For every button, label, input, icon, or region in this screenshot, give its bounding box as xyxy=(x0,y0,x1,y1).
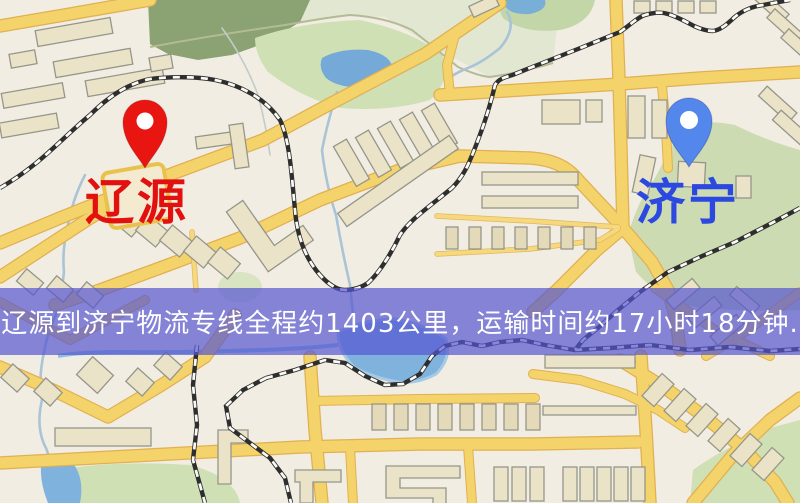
route-info-banner: 辽源到济宁物流专线全程约1403公里，运输时间约17小时18分钟. xyxy=(0,288,800,355)
landmark-building xyxy=(102,163,173,229)
map-canvas[interactable] xyxy=(0,0,800,503)
map-screenshot: 辽源到济宁物流专线全程约1403公里，运输时间约17小时18分钟. 辽源 济宁 xyxy=(0,0,800,503)
route-info-text: 辽源到济宁物流专线全程约1403公里，运输时间约17小时18分钟. xyxy=(1,303,799,340)
